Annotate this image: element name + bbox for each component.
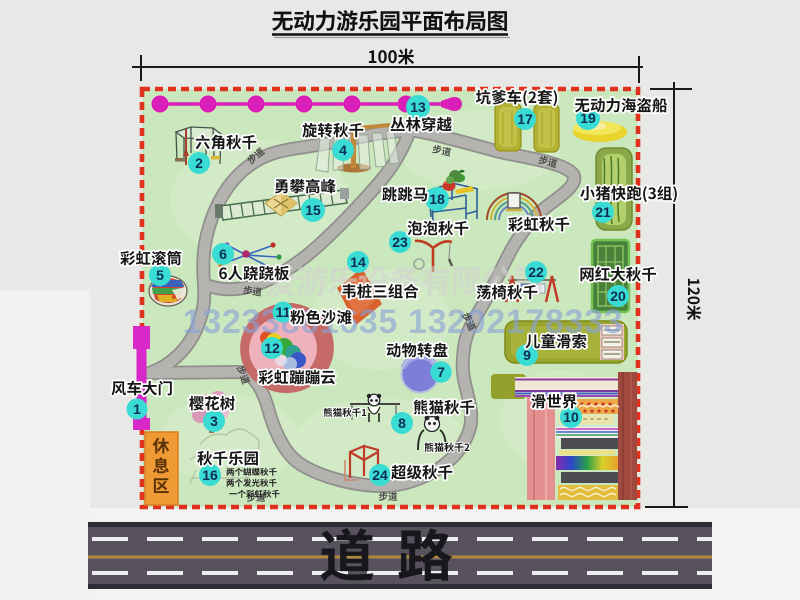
svg-text:17: 17 xyxy=(517,111,533,127)
svg-text:4: 4 xyxy=(339,142,347,158)
svg-text:10: 10 xyxy=(563,409,579,425)
svg-text:2: 2 xyxy=(195,155,203,171)
svg-text:5: 5 xyxy=(156,267,164,283)
svg-text:12: 12 xyxy=(264,340,280,356)
svg-text:21: 21 xyxy=(595,204,611,220)
svg-text:15: 15 xyxy=(305,202,321,218)
svg-text:24: 24 xyxy=(372,467,388,483)
svg-text:6: 6 xyxy=(219,246,227,262)
svg-text:3: 3 xyxy=(210,413,218,429)
svg-text:8: 8 xyxy=(398,415,406,431)
svg-text:14: 14 xyxy=(350,254,366,270)
svg-text:13: 13 xyxy=(410,99,426,115)
svg-text:1: 1 xyxy=(133,401,141,417)
svg-text:22: 22 xyxy=(528,264,544,280)
svg-text:7: 7 xyxy=(437,364,445,380)
svg-text:18: 18 xyxy=(429,191,445,207)
svg-text:23: 23 xyxy=(392,234,408,250)
svg-text:16: 16 xyxy=(202,467,218,483)
svg-text:20: 20 xyxy=(610,288,626,304)
svg-text:11: 11 xyxy=(276,304,291,320)
